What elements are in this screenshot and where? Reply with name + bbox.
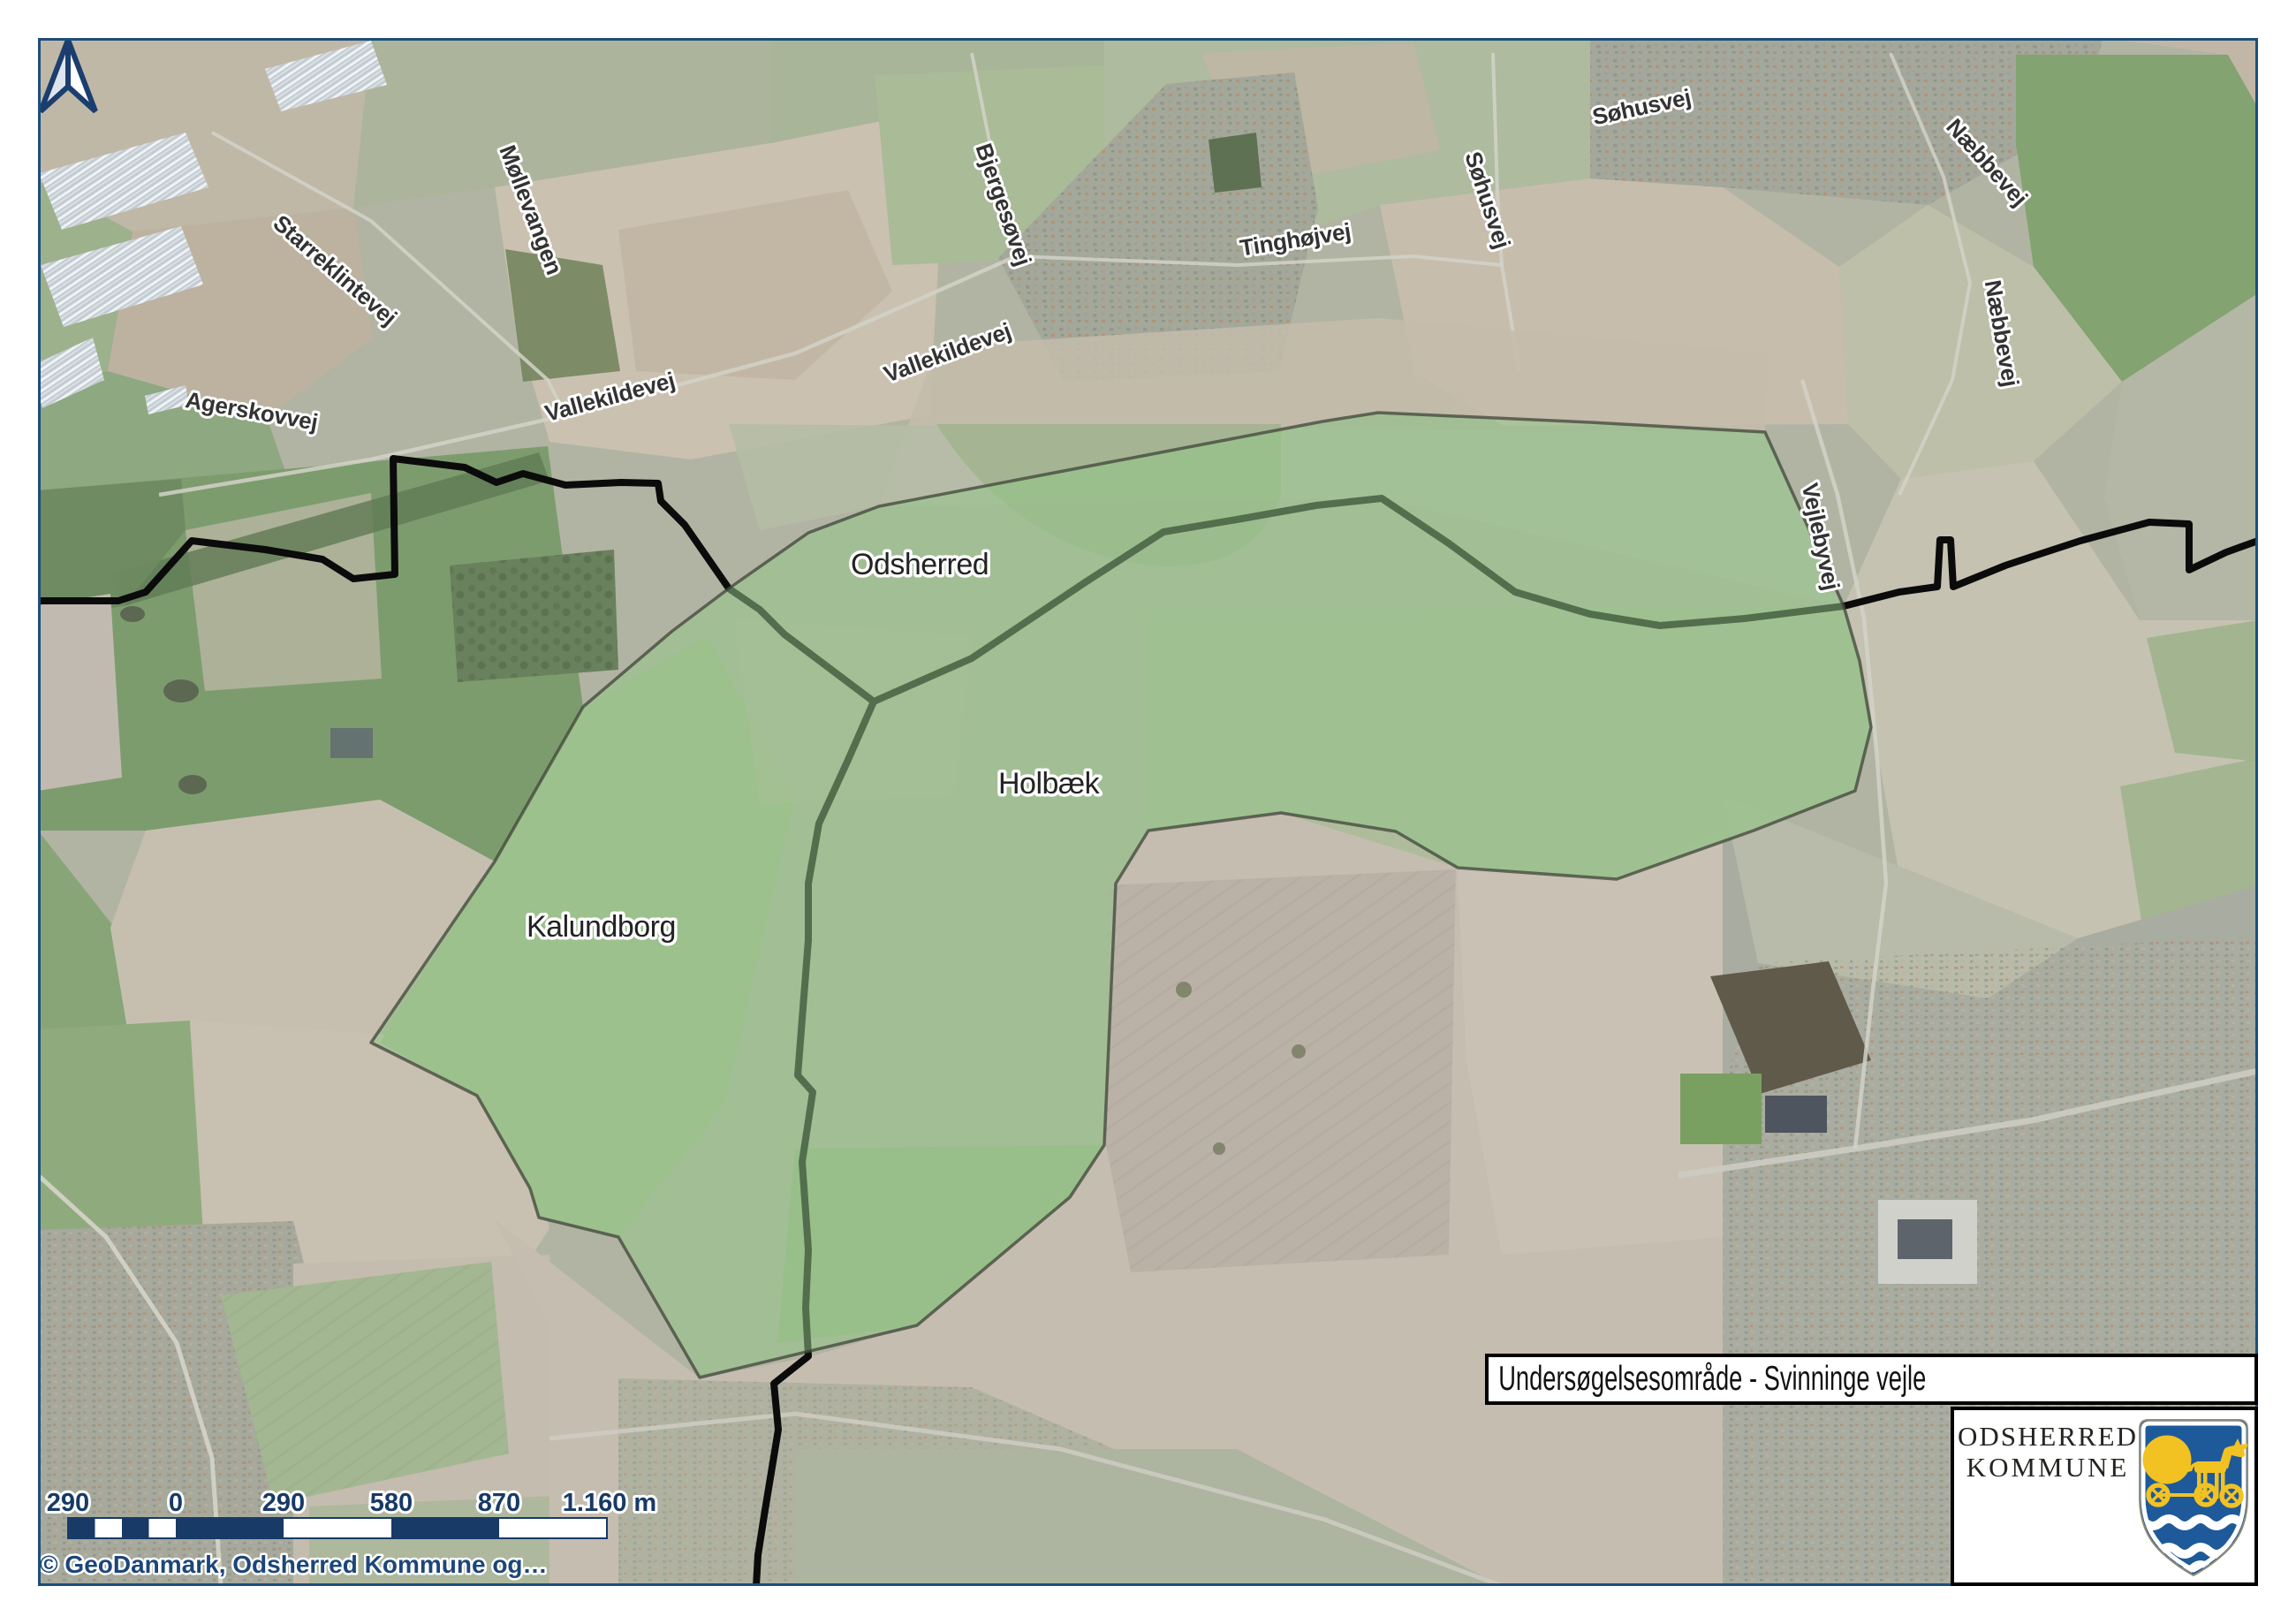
svg-text:Odsherred: Odsherred [851, 548, 989, 581]
svg-text:1.160 m: 1.160 m [563, 1489, 656, 1517]
svg-text:Holbæk: Holbæk [998, 767, 1101, 801]
svg-text:© GeoDanmark, Odsherred Kommun: © GeoDanmark, Odsherred Kommune og… [40, 1551, 548, 1578]
svg-text:290: 290 [262, 1489, 305, 1517]
svg-text:870: 870 [478, 1489, 520, 1517]
svg-text:290: 290 [47, 1489, 89, 1517]
svg-text:580: 580 [370, 1489, 413, 1517]
svg-text:0: 0 [169, 1489, 183, 1517]
svg-text:Kalundborg: Kalundborg [527, 910, 676, 944]
